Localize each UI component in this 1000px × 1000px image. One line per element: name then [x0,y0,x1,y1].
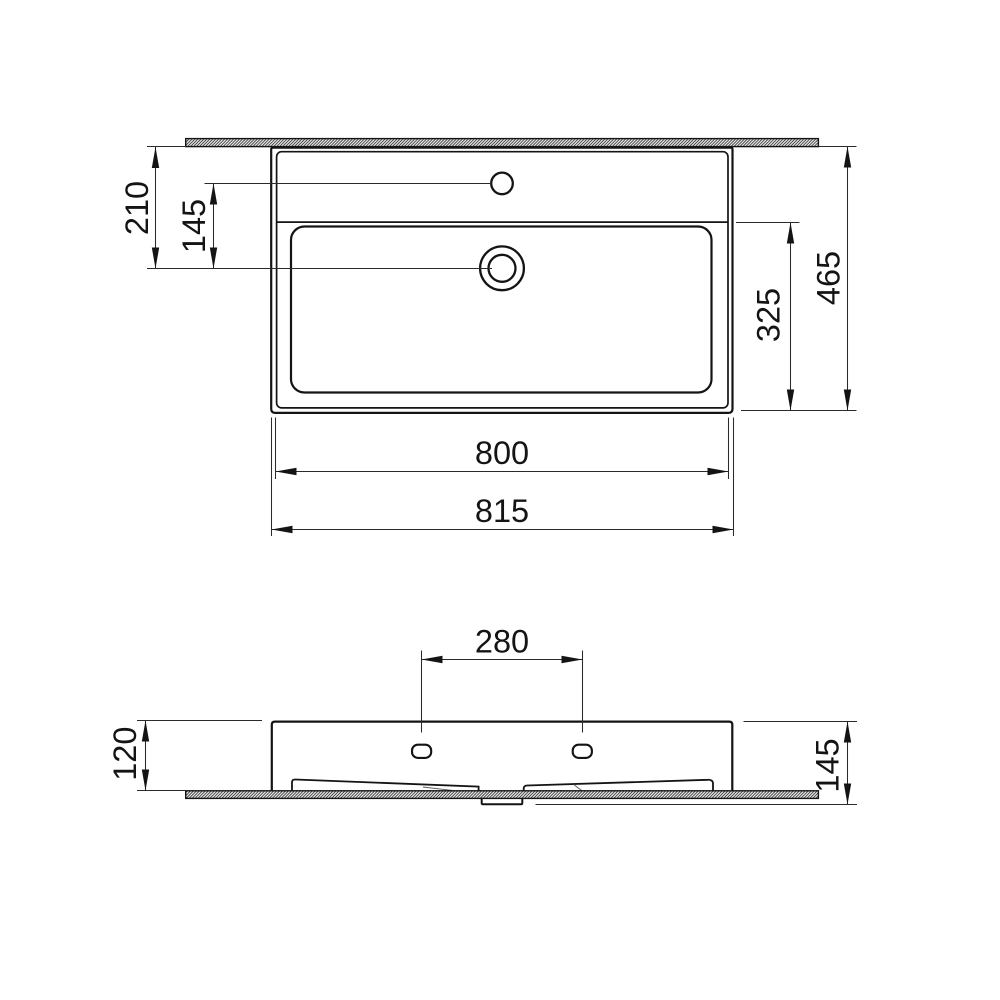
svg-text:465: 465 [811,251,847,305]
svg-text:325: 325 [751,288,787,342]
svg-text:800: 800 [475,435,529,471]
svg-text:145: 145 [810,738,846,792]
svg-text:145: 145 [176,199,212,253]
svg-text:280: 280 [475,624,529,660]
svg-text:210: 210 [119,181,155,235]
svg-text:120: 120 [107,727,143,781]
svg-text:815: 815 [475,493,529,529]
